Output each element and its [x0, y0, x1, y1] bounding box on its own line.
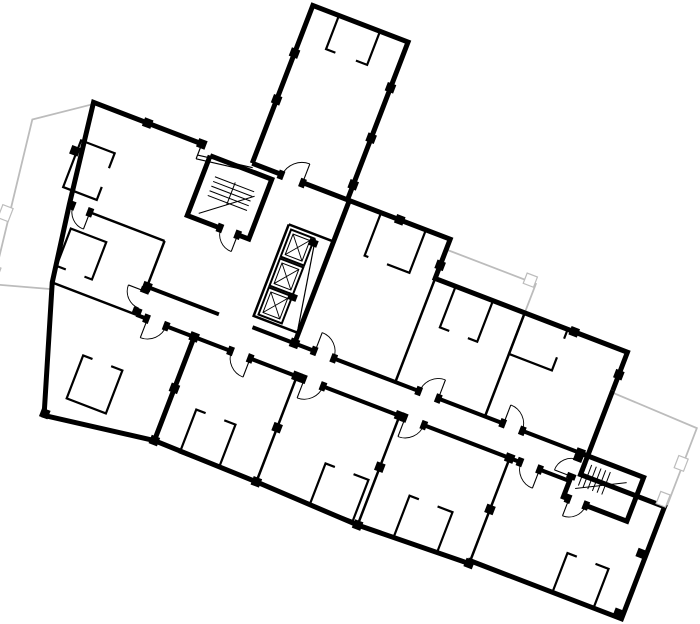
floor-plan-svg: [0, 0, 700, 624]
plan-background: [0, 0, 700, 624]
floor-plan-page: [0, 0, 700, 624]
